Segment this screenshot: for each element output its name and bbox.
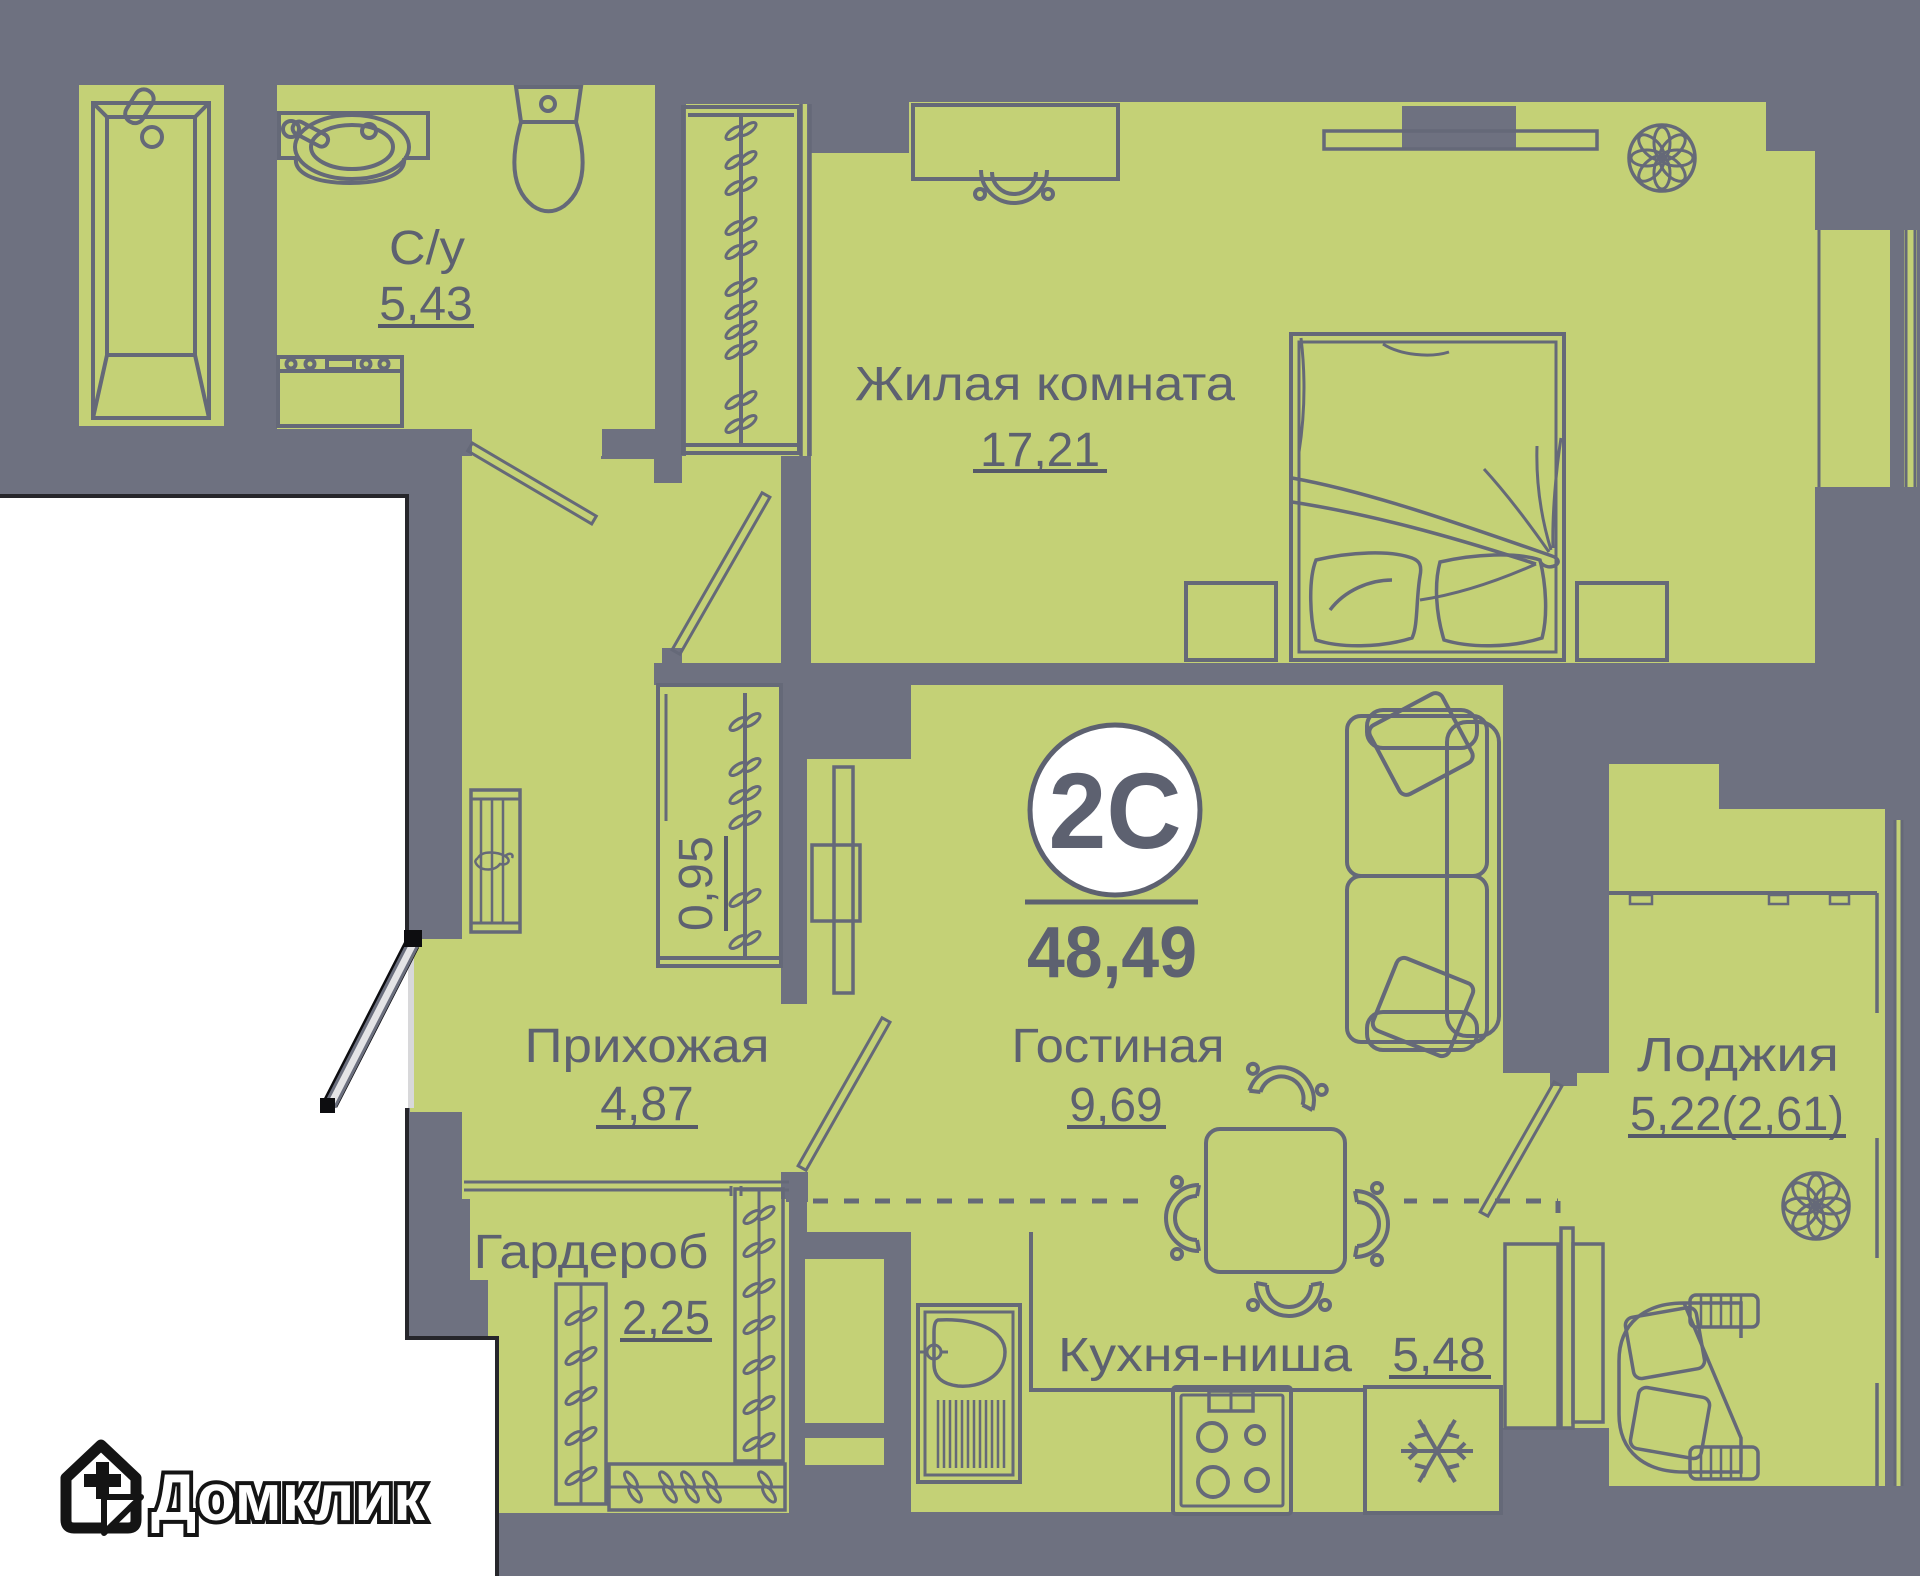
svg-text:Лоджия: Лоджия bbox=[1637, 1029, 1839, 1082]
svg-text:2С: 2С bbox=[1049, 750, 1182, 871]
svg-text:9,69: 9,69 bbox=[1069, 1079, 1162, 1132]
svg-text:48,49: 48,49 bbox=[1027, 913, 1197, 993]
svg-text:Гостиная: Гостиная bbox=[1012, 1020, 1225, 1073]
svg-text:Жилая комната: Жилая комната bbox=[855, 358, 1235, 411]
svg-text:5,48: 5,48 bbox=[1392, 1329, 1485, 1382]
svg-text:5,43: 5,43 bbox=[379, 278, 472, 331]
svg-text:0,95: 0,95 bbox=[670, 836, 723, 931]
svg-text:4,87: 4,87 bbox=[600, 1078, 693, 1131]
svg-text:Прихожая: Прихожая bbox=[525, 1020, 770, 1073]
svg-text:Гардероб: Гардероб bbox=[474, 1226, 709, 1279]
svg-text:Кухня-ниша: Кухня-ниша bbox=[1058, 1329, 1352, 1382]
svg-text:2,25: 2,25 bbox=[622, 1292, 710, 1345]
svg-text:С/у: С/у bbox=[389, 222, 465, 275]
svg-text:5,22(2,61): 5,22(2,61) bbox=[1630, 1088, 1844, 1141]
svg-text:Домклик: Домклик bbox=[151, 1460, 426, 1534]
